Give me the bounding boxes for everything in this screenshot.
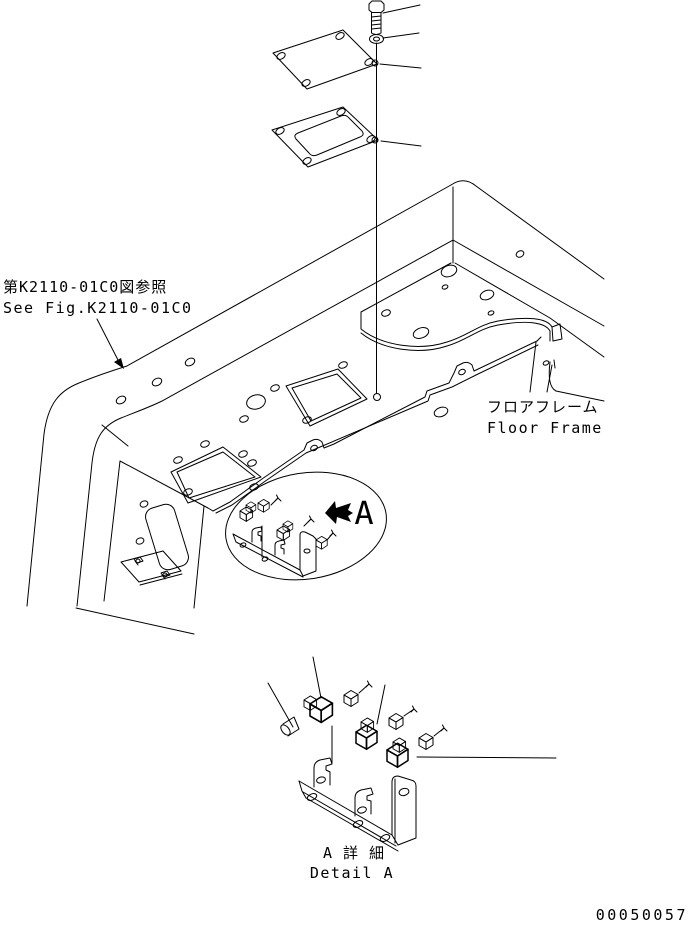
detail-a-view xyxy=(268,657,556,851)
reference-leader-arrowhead xyxy=(114,358,124,369)
leader-relay6 xyxy=(417,757,556,758)
floor-frame-leaders xyxy=(530,342,552,392)
detail-marker-letter: A xyxy=(354,494,373,532)
relay-group xyxy=(304,681,447,767)
detail-bolt xyxy=(279,717,299,737)
exploded-cover-assembly xyxy=(272,1,421,393)
front-face xyxy=(104,461,213,608)
washer xyxy=(370,35,384,44)
detail-title-jp: A 詳 細 xyxy=(323,844,385,862)
detail-arrow-icon xyxy=(325,501,353,524)
drawing-number: 00050057 xyxy=(596,906,688,924)
leader-relay3 xyxy=(377,685,385,724)
annotations: 第K2110-01C0図参照 See Fig.K2110-01C0 フロアフレー… xyxy=(3,278,688,924)
corner-plate xyxy=(361,263,562,350)
reference-leader xyxy=(97,319,119,362)
leader-lines xyxy=(377,5,422,393)
gasket xyxy=(272,107,378,167)
cover-plate xyxy=(273,30,378,89)
detail-title-en: Detail A xyxy=(310,864,394,882)
parts-diagram-page: A xyxy=(0,0,689,926)
upper-rect-opening xyxy=(286,369,367,426)
relay-bracket xyxy=(299,758,416,851)
front-slot xyxy=(143,502,190,572)
reference-note-en: See Fig.K2110-01C0 xyxy=(3,299,193,317)
floor-frame-label-jp: フロアフレーム xyxy=(487,398,599,416)
bolt-hole-center xyxy=(374,394,381,401)
parts-diagram: A xyxy=(0,0,689,926)
bolt xyxy=(369,1,384,35)
leader-relay1 xyxy=(313,657,321,698)
reference-note-jp: 第K2110-01C0図参照 xyxy=(3,278,167,296)
floor-frame-label-en: Floor Frame xyxy=(487,419,603,437)
small-mount-plate xyxy=(121,551,182,585)
callout-relay-bracket xyxy=(233,495,336,577)
